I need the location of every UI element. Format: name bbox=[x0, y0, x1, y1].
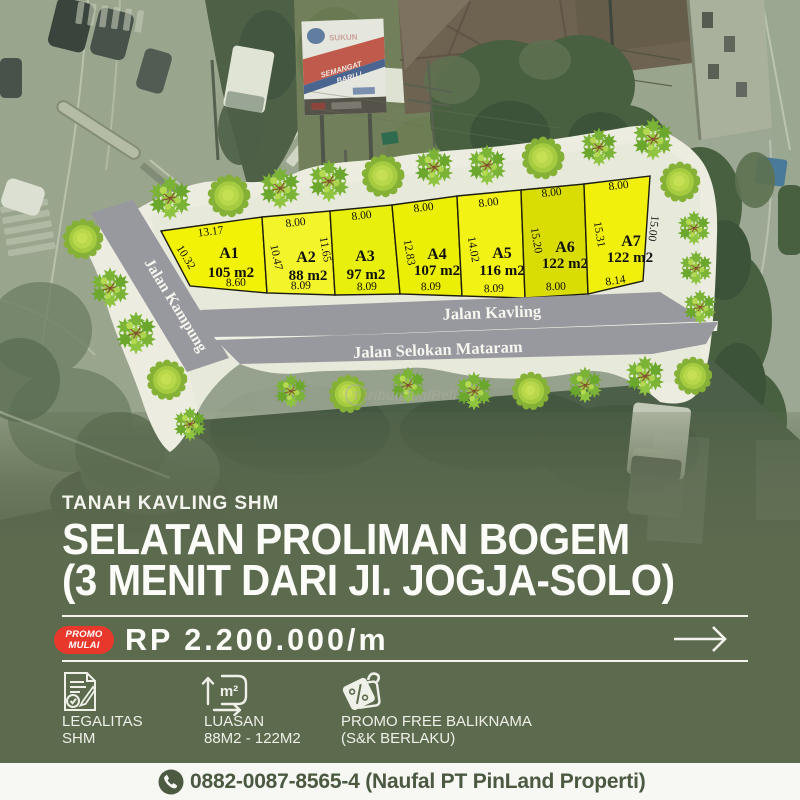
svg-text:8.09: 8.09 bbox=[291, 280, 312, 293]
svg-text:107 m2: 107 m2 bbox=[414, 263, 460, 279]
svg-text:A1: A1 bbox=[219, 245, 239, 262]
svg-text:A2: A2 bbox=[296, 249, 316, 266]
svg-text:Jalan Kavling: Jalan Kavling bbox=[442, 301, 542, 323]
svg-text:8.09: 8.09 bbox=[357, 281, 378, 294]
svg-text:A6: A6 bbox=[555, 239, 575, 256]
svg-text:8.00: 8.00 bbox=[351, 209, 373, 223]
svg-text:A4: A4 bbox=[427, 246, 447, 263]
svg-text:SUKUN: SUKUN bbox=[329, 33, 358, 43]
svg-text:122 m2: 122 m2 bbox=[607, 250, 653, 266]
svg-text:A3: A3 bbox=[355, 248, 375, 265]
svg-text:8.60: 8.60 bbox=[226, 277, 247, 290]
svg-text:122 m2: 122 m2 bbox=[542, 256, 588, 272]
svg-text:8.00: 8.00 bbox=[608, 179, 630, 193]
svg-text:8.00: 8.00 bbox=[478, 196, 500, 210]
svg-text:m²: m² bbox=[220, 683, 238, 700]
svg-text:8.09: 8.09 bbox=[421, 281, 442, 294]
svg-text:8.00: 8.00 bbox=[546, 281, 567, 294]
svg-text:8.00: 8.00 bbox=[541, 186, 563, 200]
svg-text:A5: A5 bbox=[492, 245, 512, 262]
svg-text:116 m2: 116 m2 bbox=[479, 263, 524, 279]
svg-text:A7: A7 bbox=[621, 233, 641, 250]
svg-text:8.00: 8.00 bbox=[285, 216, 307, 230]
svg-text:8.09: 8.09 bbox=[484, 283, 505, 296]
svg-text:8.00: 8.00 bbox=[413, 201, 435, 215]
svg-text:T: T bbox=[352, 388, 361, 403]
svg-text:ribunJualBeli: ribunJualBeli bbox=[368, 387, 458, 403]
